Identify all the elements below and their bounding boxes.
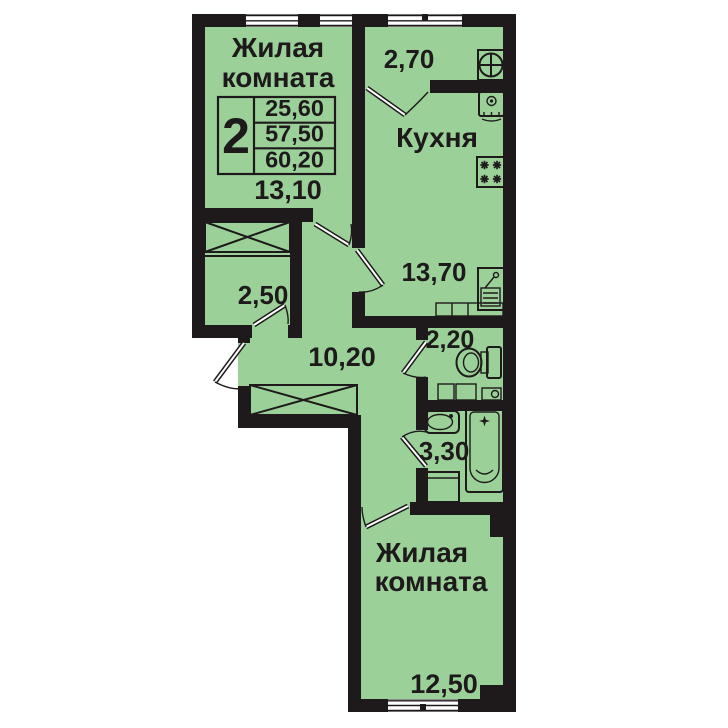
balcony-area: 2,70 [384,44,435,74]
living-top-name-line2: комната [222,62,335,93]
living-bottom-area: 12,50 [410,669,478,699]
rooms-count: 2 [222,108,250,164]
hallway-area: 10,20 [308,342,376,372]
toilet-area: 2,20 [426,326,475,354]
table-value-2: 57,50 [265,121,324,147]
living-bottom-name-line1: Жилая [375,537,468,568]
kitchen-area: 13,70 [401,257,466,287]
storage-area: 2,50 [238,280,289,310]
living-top-area: 13,10 [254,175,322,205]
table-value-3: 60,20 [265,146,324,172]
window-living-top-left [246,15,298,27]
floorplan-svg: 2 25,60 57,50 60,20 Жилая комната 13,10 … [0,0,728,728]
living-bottom-name-line2: комната [375,566,488,597]
bathroom-area: 3,30 [419,436,470,466]
table-value-1: 25,60 [265,95,324,121]
floorplan-canvas: 2 25,60 57,50 60,20 Жилая комната 13,10 … [0,0,728,728]
window-living-bottom [388,700,458,712]
window-balcony [388,15,462,27]
window-living-top-right [320,15,352,27]
kitchen-name: Кухня [396,122,478,153]
living-top-name-line1: Жилая [231,32,324,63]
